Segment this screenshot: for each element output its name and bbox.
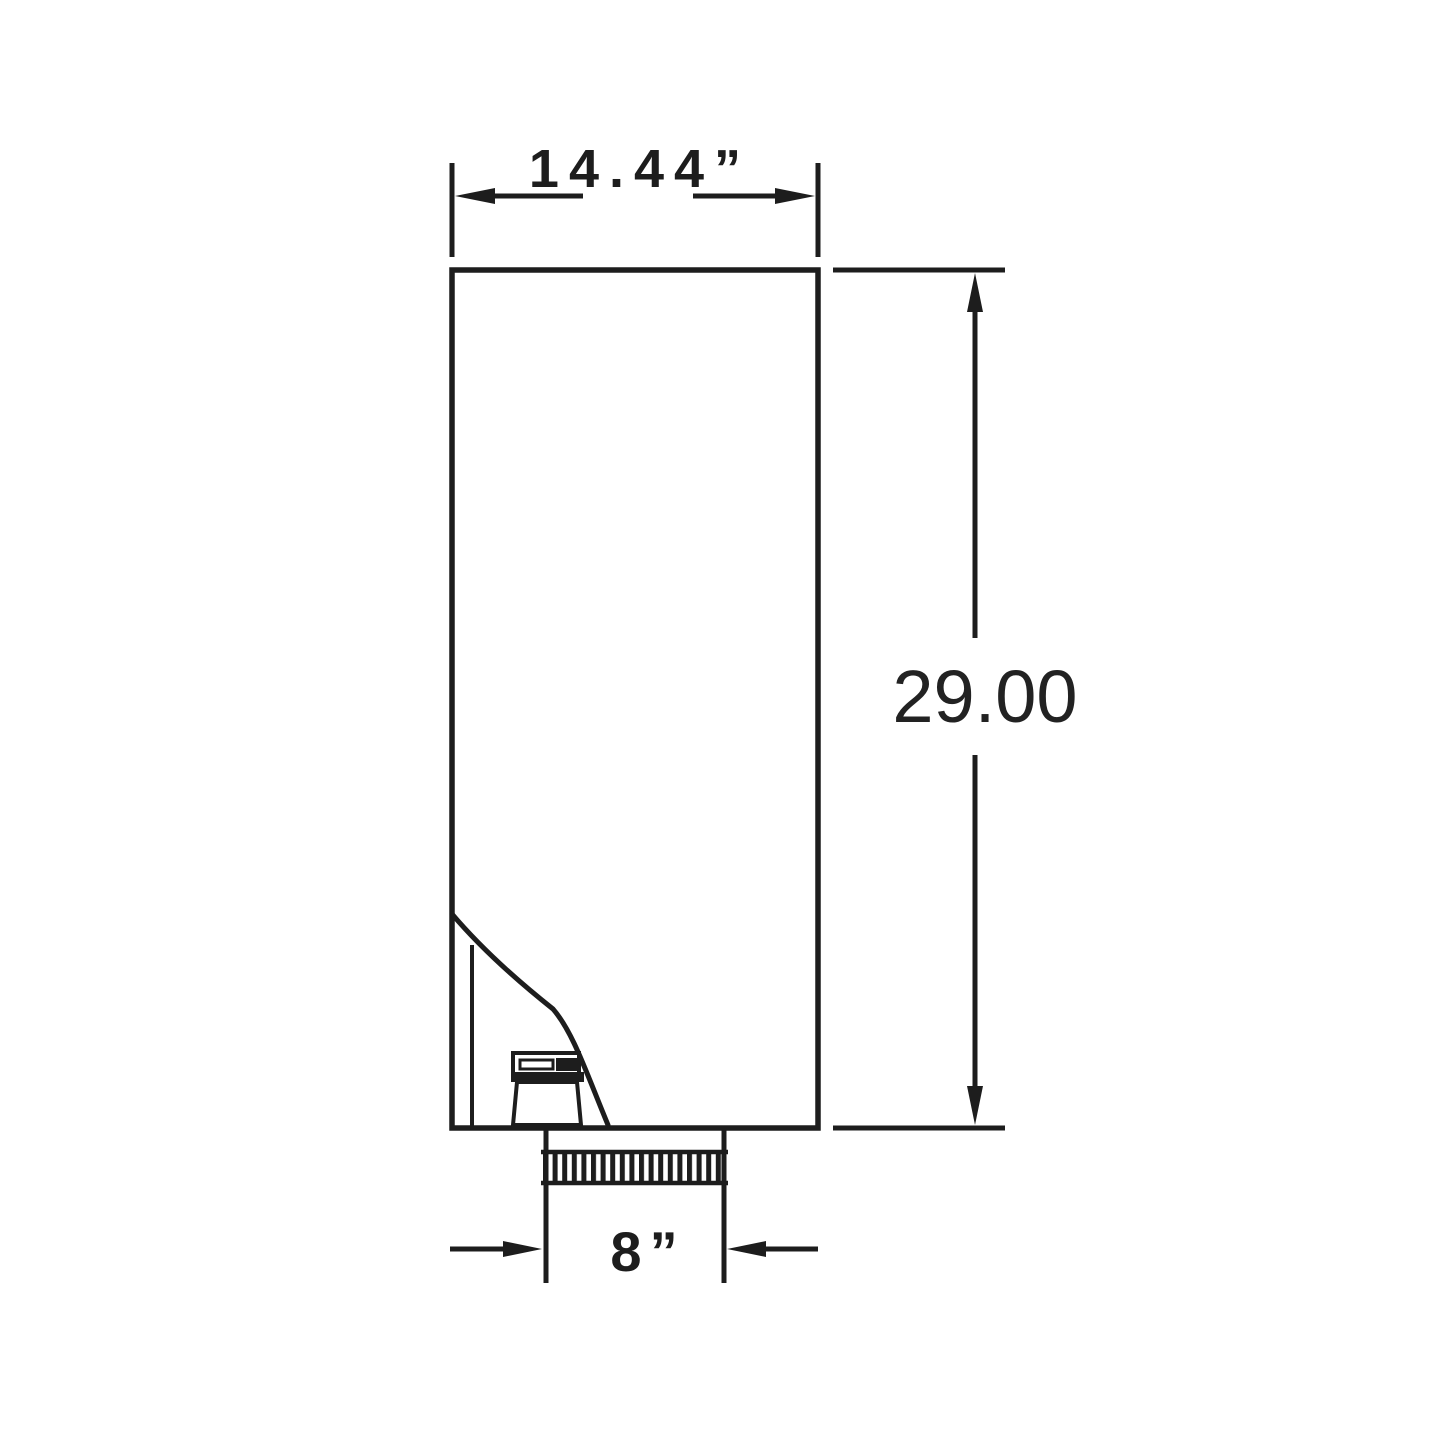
duct-dimension: 8” <box>450 1220 818 1283</box>
cabinet-outline <box>452 270 818 1128</box>
motor-base-trapezoid <box>513 1082 581 1125</box>
height-dimension-label: 29.00 <box>892 655 1077 738</box>
width-arrowhead-left <box>455 188 495 204</box>
height-arrowhead-bottom <box>967 1086 983 1125</box>
dimension-drawing-canvas: 14.44” 29.00 8” <box>0 0 1445 1445</box>
motor-assembly <box>511 1053 584 1125</box>
duct-arrowhead-right <box>727 1241 766 1257</box>
duct-arrowhead-left <box>503 1241 542 1257</box>
height-dimension: 29.00 <box>833 270 1078 1128</box>
width-dimension-label: 14.44” <box>529 139 751 199</box>
height-arrowhead-top <box>967 273 983 312</box>
width-dimension: 14.44” <box>452 139 818 257</box>
cabinet-body <box>452 270 818 1128</box>
duct-dimension-label: 8” <box>610 1220 685 1283</box>
crimp-band-hatch <box>543 1154 726 1181</box>
drawing-page: 14.44” 29.00 8” <box>0 0 1445 1445</box>
motor-connector-block <box>556 1058 577 1071</box>
width-arrowhead-right <box>775 188 815 204</box>
motor-vent-slot <box>520 1060 553 1069</box>
